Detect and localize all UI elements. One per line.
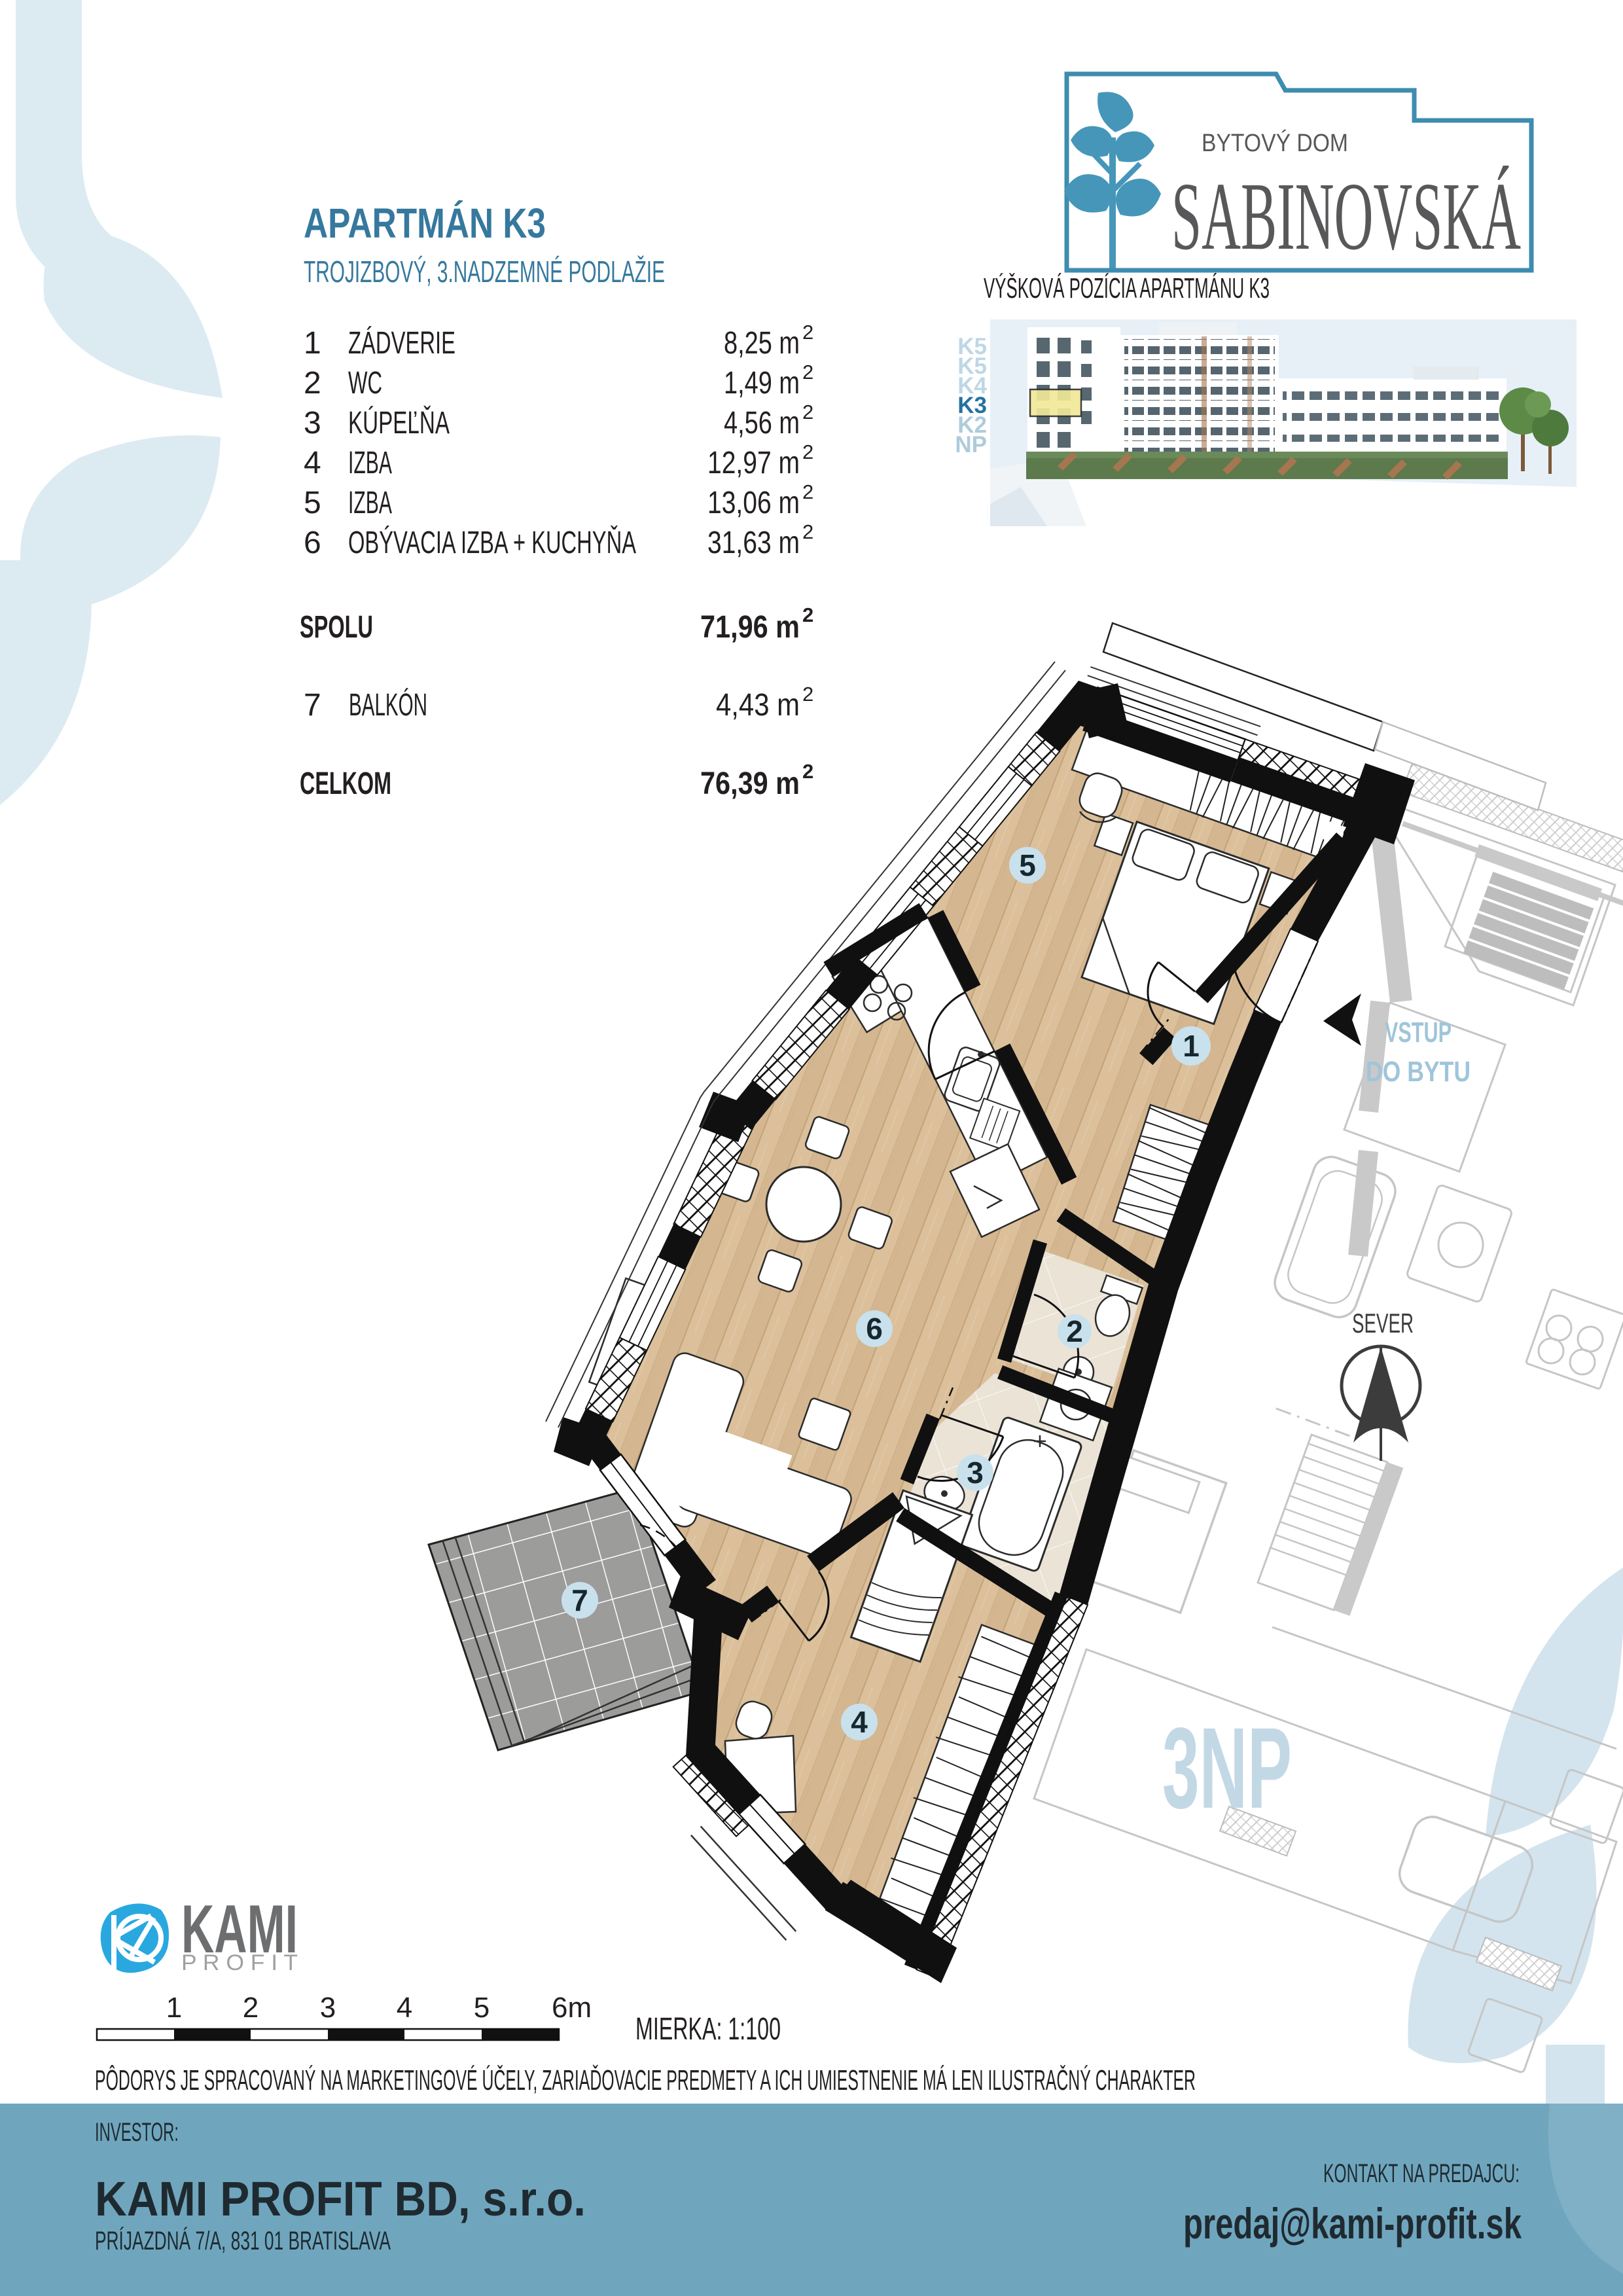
svg-text:PÔDORYS JE SPRACOVANÝ NA MARKE: PÔDORYS JE SPRACOVANÝ NA MARKETINGOVÉ ÚČ… [95,2064,1196,2096]
svg-text:KAMI PROFIT BD, s.r.o.: KAMI PROFIT BD, s.r.o. [95,2172,586,2226]
svg-text:VSTUP: VSTUP [1385,1016,1452,1049]
svg-text:6: 6 [304,526,321,560]
svg-text:6: 6 [866,1312,883,1346]
svg-text:2: 2 [802,683,813,706]
svg-text:BALKÓN: BALKÓN [349,687,427,723]
svg-text:VÝŠKOVÁ POZÍCIA APARTMÁNU K3: VÝŠKOVÁ POZÍCIA APARTMÁNU K3 [984,272,1270,304]
svg-text:BYTOVÝ DOM: BYTOVÝ DOM [1202,129,1348,157]
svg-text:PRÍJAZDNÁ 7/A, 831 01 BRATISLA: PRÍJAZDNÁ 7/A, 831 01 BRATISLAVA [95,2226,391,2255]
svg-text:IZBA: IZBA [348,446,392,480]
svg-text:3: 3 [304,406,321,440]
svg-text:4,43 m: 4,43 m [716,688,800,723]
svg-text:MIERKA: 1:100: MIERKA: 1:100 [635,2012,781,2047]
svg-text:71,96 m: 71,96 m [700,610,800,645]
svg-text:2: 2 [802,401,813,423]
svg-text:KÚPEĽŇA: KÚPEĽŇA [348,405,450,440]
svg-text:5: 5 [304,486,321,520]
svg-text:2: 2 [1066,1314,1083,1348]
svg-text:3: 3 [320,1992,336,2024]
svg-text:7: 7 [304,688,321,723]
svg-text:2: 2 [243,1992,259,2024]
svg-text:SEVER: SEVER [1352,1308,1414,1338]
svg-text:7: 7 [571,1583,588,1617]
svg-text:2: 2 [802,603,813,626]
svg-text:4: 4 [851,1705,868,1739]
svg-text:2: 2 [802,520,813,543]
svg-text:2: 2 [802,361,813,384]
svg-text:8,25 m: 8,25 m [724,326,800,361]
svg-text:4,56 m: 4,56 m [724,406,800,440]
svg-text:4: 4 [397,1992,412,2024]
svg-text:WC: WC [348,366,382,401]
svg-text:76,39 m: 76,39 m [700,766,800,801]
svg-text:13,06 m: 13,06 m [707,486,800,520]
svg-text:5: 5 [1019,848,1036,882]
svg-text:SPOLU: SPOLU [300,610,373,645]
svg-text:12,97 m: 12,97 m [707,446,800,480]
svg-text:1: 1 [166,1992,182,2024]
svg-text:1: 1 [1183,1029,1200,1063]
svg-text:predaj@kami-profit.sk: predaj@kami-profit.sk [1183,2199,1522,2248]
svg-text:1,49 m: 1,49 m [724,366,800,401]
svg-text:6m: 6m [552,1992,592,2024]
svg-text:IZBA: IZBA [348,486,392,520]
svg-text:2: 2 [802,760,813,783]
svg-text:OBÝVACIA IZBA + KUCHYŇA: OBÝVACIA IZBA + KUCHYŇA [348,526,636,560]
svg-text:3: 3 [967,1456,984,1490]
svg-text:P R O F I T: P R O F I T [181,1950,298,1975]
svg-text:APARTMÁN K3: APARTMÁN K3 [304,200,546,247]
svg-text:ZÁDVERIE: ZÁDVERIE [348,326,455,361]
svg-text:4: 4 [304,446,321,480]
svg-text:INVESTOR:: INVESTOR: [95,2118,179,2147]
svg-text:2: 2 [802,440,813,463]
svg-text:5: 5 [474,1992,490,2024]
svg-text:SABINOVSKÁ: SABINOVSKÁ [1171,163,1521,270]
svg-text:2: 2 [304,366,321,401]
svg-text:NP: NP [955,432,987,457]
svg-text:DO BYTU: DO BYTU [1366,1056,1471,1088]
svg-text:3NP: 3NP [1162,1704,1292,1833]
svg-text:CELKOM: CELKOM [300,766,391,801]
svg-text:TROJIZBOVÝ, 3.NADZEMNÉ PODLAŽI: TROJIZBOVÝ, 3.NADZEMNÉ PODLAŽIE [304,255,665,289]
svg-text:2: 2 [802,321,813,344]
svg-text:1: 1 [304,326,321,361]
svg-text:31,63 m: 31,63 m [707,526,800,560]
svg-text:2: 2 [802,480,813,503]
svg-text:KONTAKT NA PREDAJCU:: KONTAKT NA PREDAJCU: [1323,2159,1520,2188]
